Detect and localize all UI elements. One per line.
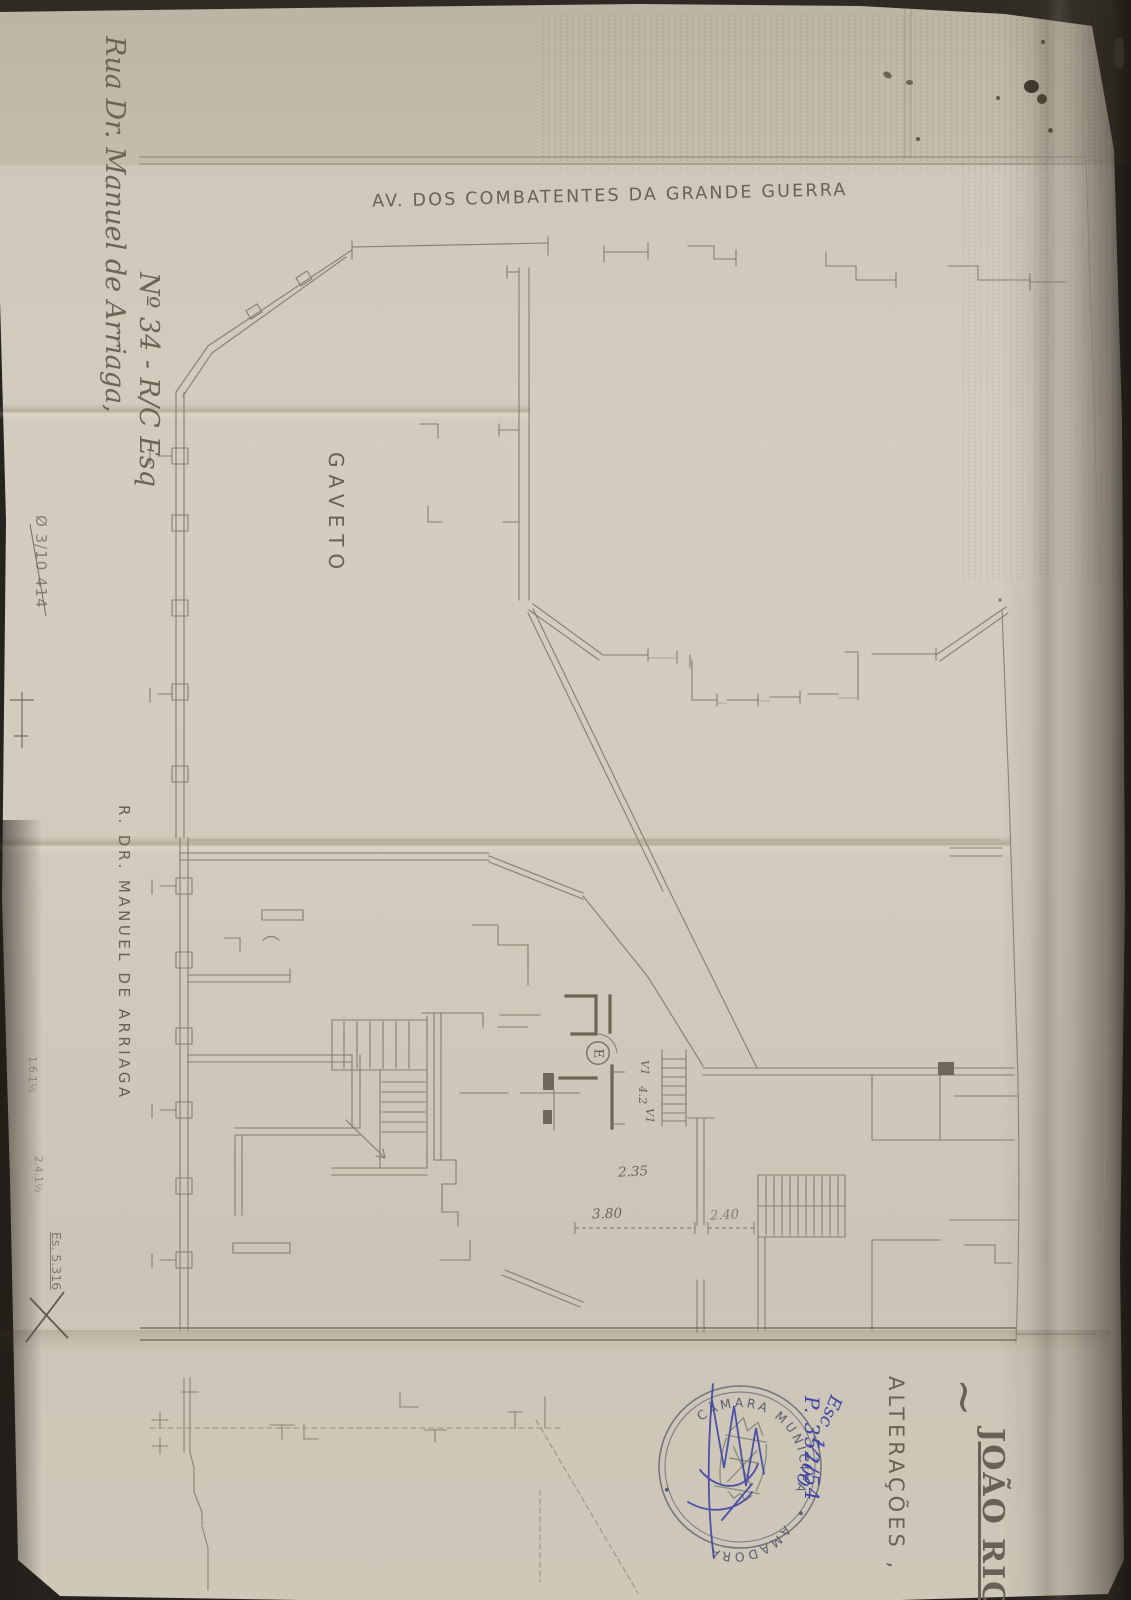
dimension-2-40: 2.40 <box>710 1207 740 1223</box>
corner-pencil-note: Es. 5.316 <box>49 1232 64 1290</box>
dimension-3-80: 3.80 <box>592 1205 623 1222</box>
dimension-2-35: 2.35 <box>618 1163 649 1181</box>
wall-hatch-fills <box>543 1062 954 1124</box>
pencil-note-b: 2.4.1½ <box>32 1156 44 1193</box>
room-letter-circle: E <box>586 1041 610 1065</box>
dimension-lines <box>575 598 1002 1234</box>
ink-blob <box>1037 94 1047 104</box>
lower-street-fragments <box>150 1378 638 1593</box>
address-annotation-line1: Rua Dr. Manuel de Arriaga, <box>99 36 130 413</box>
smudge <box>906 80 913 85</box>
street-front-walls <box>150 237 1066 1330</box>
apartment-walls <box>188 910 1014 1332</box>
ink-blob <box>1024 80 1039 93</box>
scanned-floor-plan-page: CÂMARA MUNICIPAL DA AMADORA Rua Dr. Manu… <box>0 0 1131 1600</box>
stamp-arc-bottom-text: AMADORA <box>705 1511 795 1575</box>
room-letter: E <box>591 1048 606 1058</box>
ink-dot <box>916 137 920 141</box>
stamp-separator-dot <box>799 1511 804 1516</box>
subject-note: ALTERAÇÕES , <box>884 1376 908 1572</box>
corner-label: GAVETO <box>324 452 348 576</box>
pencil-marks <box>10 524 68 1342</box>
plot-boundary-lines <box>140 10 1106 1342</box>
ink-dot <box>1041 40 1045 44</box>
floor-plan-drawing: CÂMARA MUNICIPAL DA AMADORA <box>0 0 1131 1600</box>
ink-dot <box>996 96 1000 100</box>
edge-stain <box>1114 38 1124 68</box>
stamp-arc-top-text: CÂMARA MUNICIPAL DA <box>2 0 1068 1498</box>
pencil-note-a: 1.6.1½ <box>26 1056 38 1093</box>
ink-dot <box>1048 128 1053 133</box>
title-tilde: ~ <box>938 1378 992 1417</box>
street-name-left: R. DR. MANUEL DE ARRIAGA <box>115 805 133 1101</box>
window-label-v1-bottom: V1 <box>643 1108 657 1124</box>
owner-name: JOÃO RIC <box>975 1428 1010 1600</box>
edge-pencil-note: Ø 3/10 414 <box>32 515 50 609</box>
municipal-stamp: CÂMARA MUNICIPAL DA AMADORA <box>0 0 1077 1578</box>
window-label-v1-top: V1 <box>638 1060 652 1076</box>
dimension-4-2: 4.2 <box>636 1086 650 1104</box>
lower-boundary-line <box>140 1328 1096 1340</box>
address-annotation-line2: Nº 34 - R/C Esq <box>133 272 164 487</box>
